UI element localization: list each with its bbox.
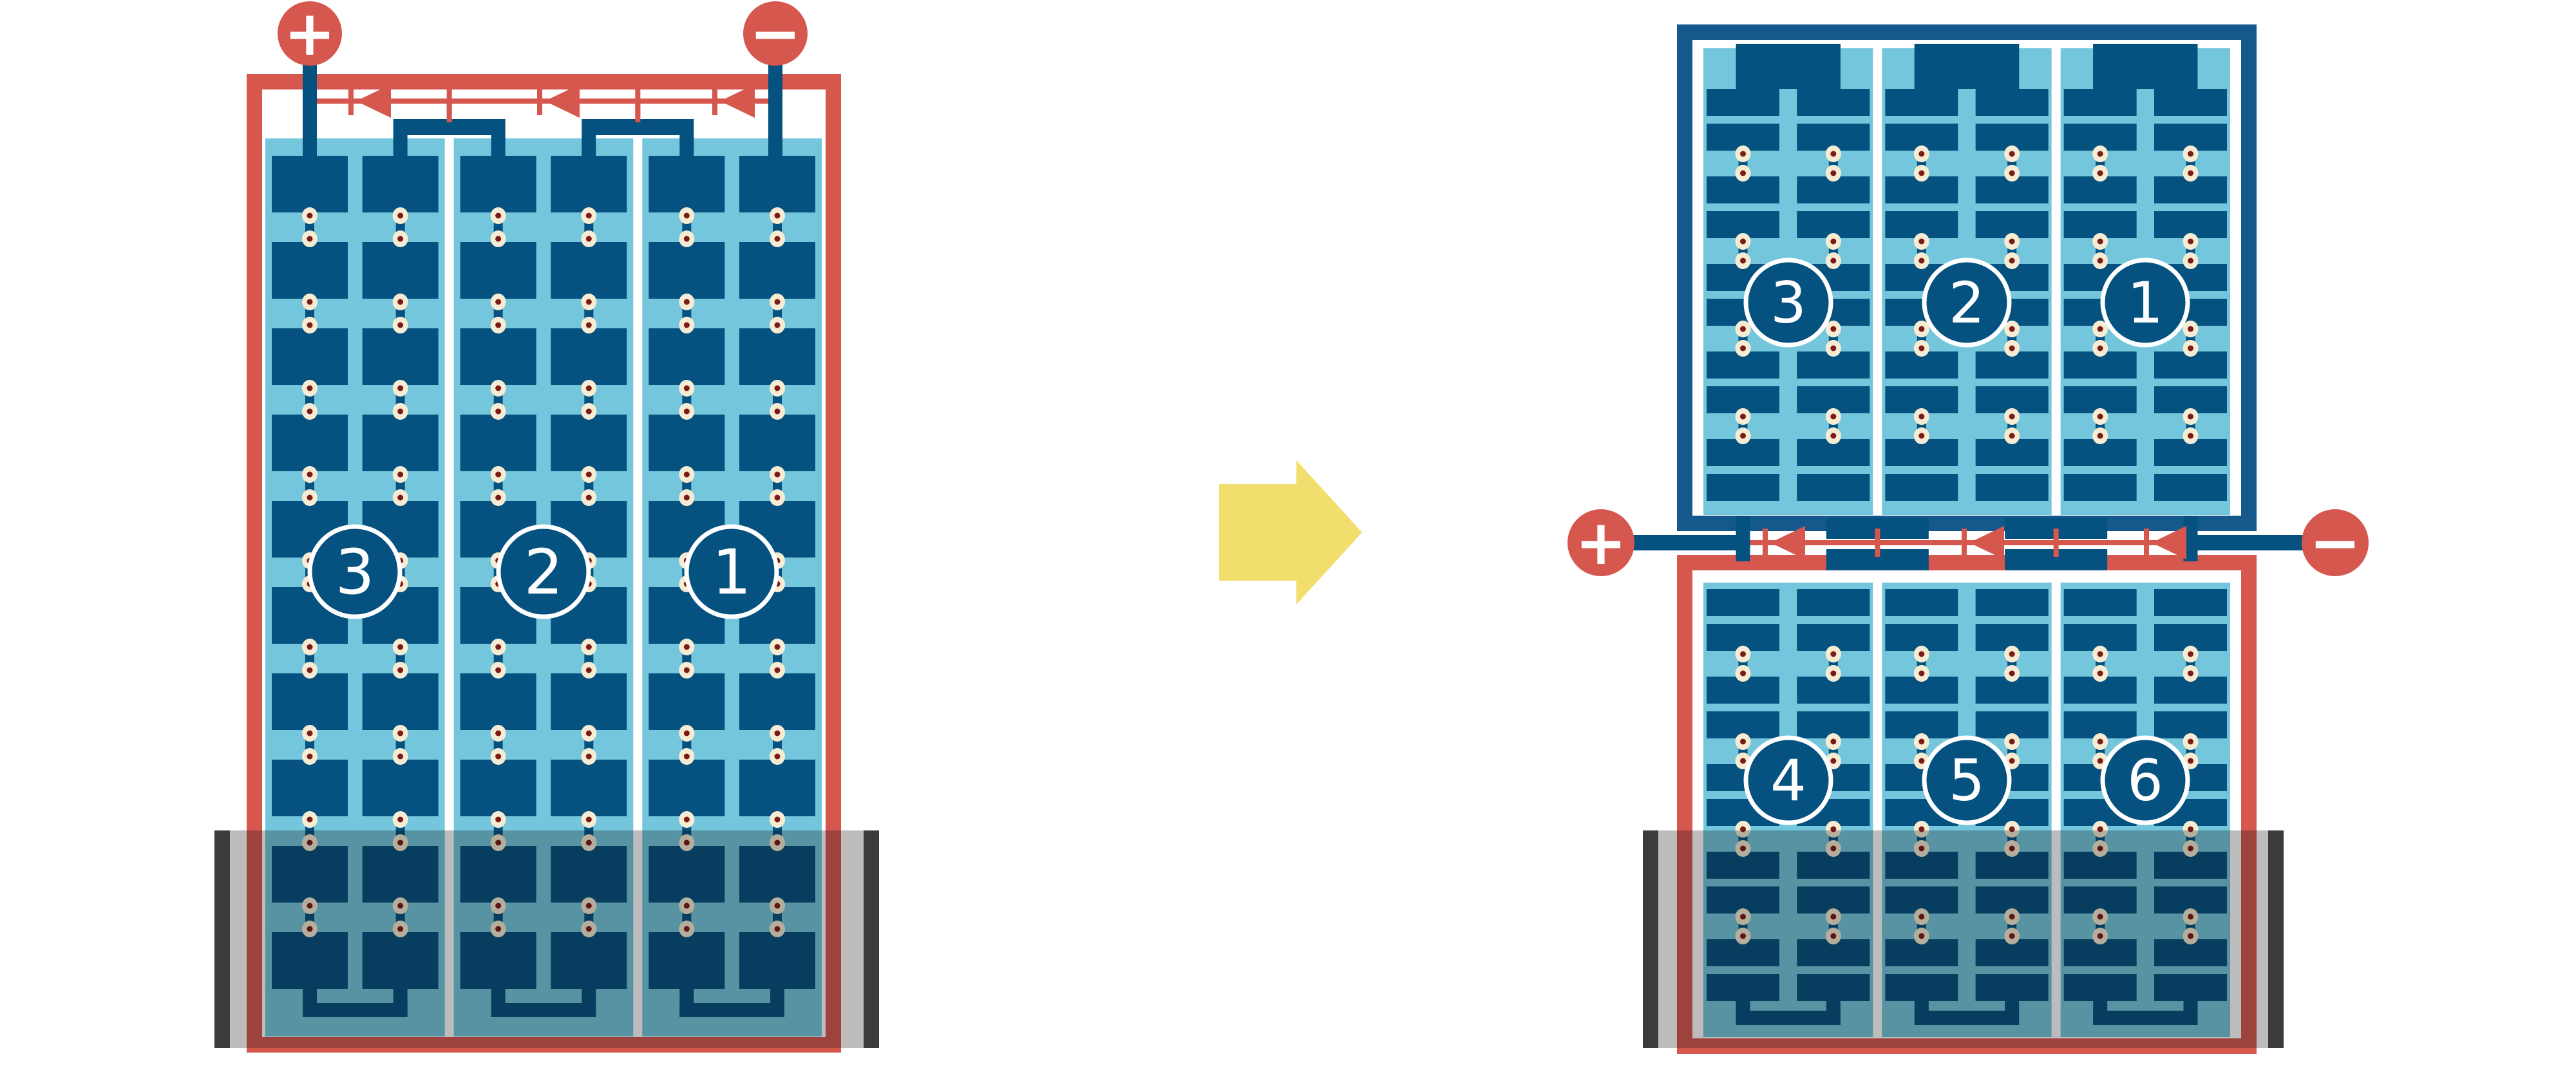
connector-dot-core — [397, 644, 403, 650]
solar-cell — [649, 156, 724, 212]
connector-dot-core — [775, 644, 781, 650]
connector-dot-core — [495, 409, 501, 415]
diagram-stage: + − 3 2 1 + − 3 — [0, 0, 2576, 1068]
bus-bridge-leg — [679, 135, 694, 158]
connector-dot-core — [2098, 651, 2103, 657]
solar-cell — [649, 415, 724, 471]
rail-end-cap — [2268, 830, 2284, 1048]
diagram-canvas: + − 3 2 1 + − 3 — [0, 0, 2576, 1068]
solar-cell — [551, 760, 627, 816]
wire-tick — [2054, 529, 2059, 557]
connector-dot-core — [775, 731, 781, 736]
connector-dot-core — [1740, 326, 1746, 332]
connector-dot-core — [684, 323, 690, 328]
connector-dot-core — [2098, 671, 2103, 677]
solar-cell — [1976, 474, 2049, 501]
connector-dot-core — [495, 495, 501, 501]
connector-dot-core — [1918, 414, 1924, 420]
connector-dot-core — [307, 644, 313, 650]
solar-cell — [2154, 589, 2227, 616]
connector-dot-core — [2098, 433, 2103, 439]
right-bottom-string-badges: 4 5 6 — [1746, 738, 2188, 823]
connector-dot-core — [397, 472, 403, 478]
connector-dot-core — [307, 817, 313, 823]
solar-cell — [272, 760, 348, 816]
connector-dot-core — [1830, 651, 1836, 657]
solar-cell — [460, 673, 536, 730]
connector-dot-core — [307, 386, 313, 391]
right-modules-figure: + − 3 2 1 4 5 6 — [1567, 32, 2369, 1048]
solar-cell — [363, 415, 439, 471]
bus-bridge-leg — [393, 135, 408, 158]
solar-cell — [739, 673, 815, 730]
solar-cell — [649, 242, 724, 299]
solar-cell — [551, 156, 627, 212]
rail-shade — [230, 830, 864, 1048]
connector-dot-core — [2098, 258, 2103, 264]
solar-cell — [1885, 89, 1958, 116]
string-badge-label: 5 — [1949, 747, 1985, 814]
connector-dot-core — [1740, 346, 1746, 351]
connector-dot-core — [775, 754, 781, 760]
connector-dot-core — [775, 323, 781, 328]
u-connector-bar — [1915, 44, 2019, 58]
connector-dot-core — [684, 386, 690, 391]
connector-dot-core — [684, 495, 690, 501]
connector-dot-core — [2188, 326, 2193, 332]
solar-cell — [1976, 89, 2049, 116]
transform-arrow-icon — [1219, 460, 1362, 604]
connector-dot-core — [2009, 671, 2015, 677]
positive-terminal-label: + — [1575, 507, 1627, 579]
wire-drop — [447, 104, 452, 122]
connector-dot-core — [495, 236, 501, 242]
connector-dot-core — [586, 731, 592, 736]
diode-tick — [712, 87, 717, 115]
right-mounting-rail — [1643, 830, 2284, 1048]
connector-dot-core — [586, 668, 592, 673]
connector-dot-core — [397, 236, 403, 242]
connector-dot-core — [2009, 346, 2015, 351]
connector-dot-core — [1918, 758, 1924, 764]
connector-dot-core — [2188, 739, 2193, 745]
solar-cell — [739, 242, 815, 299]
connector-dot-core — [1830, 758, 1836, 764]
connector-dot-core — [1740, 258, 1746, 264]
connector-dot-core — [1740, 433, 1746, 439]
rail-end-cap — [864, 830, 879, 1048]
connector-dot-core — [586, 213, 592, 219]
left-module-figure: + − 3 2 1 — [214, 0, 879, 1048]
connector-dot-core — [775, 495, 781, 501]
connector-dot-core — [1918, 671, 1924, 677]
connector-dot-core — [2009, 239, 2015, 245]
solar-cell — [551, 673, 627, 730]
solar-cell — [1885, 589, 1958, 616]
solar-cell — [551, 242, 627, 299]
connector-dot-core — [495, 754, 501, 760]
column-gap — [2052, 48, 2061, 515]
connector-dot-core — [684, 299, 690, 305]
connector-dot-core — [1740, 171, 1746, 176]
connector-dot-core — [2009, 151, 2015, 157]
connector-dot-core — [307, 213, 313, 219]
connector-dot-core — [1918, 346, 1924, 351]
connector-dot-core — [397, 668, 403, 673]
connector-dot-core — [586, 472, 592, 478]
positive-terminal-label: + — [284, 0, 336, 70]
solar-cell — [649, 760, 724, 816]
negative-terminal-label: − — [2309, 507, 2361, 579]
connector-dot-core — [1830, 326, 1836, 332]
solar-cell — [1707, 474, 1779, 501]
connector-dot-core — [2009, 326, 2015, 332]
string-badge-label: 6 — [2127, 747, 2163, 814]
solar-cell — [739, 415, 815, 471]
connector-dot-core — [2098, 346, 2103, 351]
terminal-bus-bar — [2198, 535, 2305, 550]
connector-dot-core — [2098, 239, 2103, 245]
connector-dot-core — [1918, 171, 1924, 176]
string-badge-label: 2 — [524, 536, 563, 608]
solar-cell — [2064, 89, 2137, 116]
solar-cell — [2064, 474, 2137, 501]
bus-bridge-leg — [491, 135, 506, 158]
connector-dot-core — [1918, 739, 1924, 745]
connector-dot-core — [397, 754, 403, 760]
connector-dot-core — [307, 731, 313, 736]
connector-dot-core — [1918, 326, 1924, 332]
left-mounting-rail — [214, 830, 879, 1048]
string-badge-label: 1 — [2127, 270, 2163, 336]
connector-dot-core — [586, 817, 592, 823]
column-gap — [1873, 48, 1882, 515]
connector-dot-core — [495, 668, 501, 673]
connector-dot-core — [1740, 651, 1746, 657]
connector-dot-core — [397, 409, 403, 415]
solar-cell — [739, 760, 815, 816]
solar-cell — [1885, 474, 1958, 501]
solar-cell — [272, 242, 348, 299]
u-connector-bar — [2093, 44, 2197, 58]
solar-cell — [363, 242, 439, 299]
solar-cell — [272, 673, 348, 730]
connector-dot-core — [397, 386, 403, 391]
connector-dot-core — [586, 644, 592, 650]
solar-cell — [460, 156, 536, 212]
connector-dot-core — [775, 817, 781, 823]
solar-cell — [1976, 589, 2049, 616]
solar-cell — [551, 328, 627, 385]
solar-cell — [2064, 589, 2137, 616]
connector-dot-core — [307, 754, 313, 760]
solar-cell — [272, 415, 348, 471]
connector-dot-core — [2098, 171, 2103, 176]
connector-dot-core — [1830, 671, 1836, 677]
solar-cell — [1797, 89, 1870, 116]
connector-dot-core — [2188, 758, 2193, 764]
connector-dot-core — [495, 299, 501, 305]
connector-dot-core — [307, 668, 313, 673]
solar-cell — [739, 328, 815, 385]
connector-dot-core — [684, 213, 690, 219]
connector-dot-core — [2188, 651, 2193, 657]
solar-cell — [460, 415, 536, 471]
connector-dot-core — [1830, 433, 1836, 439]
connector-dot-core — [684, 817, 690, 823]
connector-dot-core — [2009, 651, 2015, 657]
connector-dot-core — [684, 668, 690, 673]
connector-dot-core — [397, 731, 403, 736]
connector-dot-core — [586, 409, 592, 415]
connector-dot-core — [397, 495, 403, 501]
solar-cell — [2154, 474, 2227, 501]
connector-dot-core — [1830, 346, 1836, 351]
solar-cell — [363, 156, 439, 212]
diode-tick — [2144, 529, 2149, 557]
connector-dot-core — [586, 754, 592, 760]
connector-dot-core — [586, 323, 592, 328]
connector-dot-core — [2009, 258, 2015, 264]
connector-dot-core — [1830, 414, 1836, 420]
solar-cell — [363, 328, 439, 385]
connector-dot-core — [495, 817, 501, 823]
rail-shade — [1658, 830, 2268, 1048]
connector-dot-core — [1740, 758, 1746, 764]
string-badge-label: 2 — [1949, 270, 1985, 336]
connector-dot-core — [684, 409, 690, 415]
connector-dot-core — [1830, 171, 1836, 176]
connector-dot-core — [775, 668, 781, 673]
terminal-post — [768, 61, 782, 187]
connector-dot-core — [397, 213, 403, 219]
connector-dot-core — [1740, 671, 1746, 677]
connector-dot-core — [2009, 758, 2015, 764]
connector-dot-core — [2188, 346, 2193, 351]
connector-dot-core — [495, 644, 501, 650]
connector-dot-core — [775, 409, 781, 415]
terminal-bus-bar — [1627, 535, 1736, 550]
string-badge-label: 3 — [335, 536, 374, 608]
connector-dot-core — [2098, 151, 2103, 157]
connector-dot-core — [307, 495, 313, 501]
solar-cell — [649, 328, 724, 385]
connector-dot-core — [2188, 258, 2193, 264]
solar-cell — [363, 673, 439, 730]
connector-dot-core — [1740, 414, 1746, 420]
connector-dot-core — [586, 386, 592, 391]
connector-dot-core — [684, 754, 690, 760]
connector-dot-core — [1830, 151, 1836, 157]
connector-dot-core — [775, 299, 781, 305]
diode-tick — [1763, 529, 1768, 557]
connector-dot-core — [2188, 239, 2193, 245]
connector-dot-core — [307, 299, 313, 305]
connector-dot-core — [775, 213, 781, 219]
solar-cell — [1707, 89, 1779, 116]
diode-tick — [1962, 529, 1967, 557]
connector-dot-core — [397, 299, 403, 305]
connector-dot-core — [2188, 151, 2193, 157]
diode-tick — [348, 87, 354, 115]
string-badge-label: 4 — [1770, 747, 1806, 814]
connector-dot-core — [1918, 651, 1924, 657]
connector-dot-core — [2188, 433, 2193, 439]
connector-dot-core — [307, 323, 313, 328]
junction-connector — [1736, 516, 1750, 561]
connector-dot-core — [586, 495, 592, 501]
connector-dot-core — [307, 409, 313, 415]
connector-dot-core — [2098, 414, 2103, 420]
string-badge-label: 1 — [712, 536, 751, 608]
connector-dot-core — [775, 472, 781, 478]
connector-dot-core — [495, 323, 501, 328]
wire-tick — [1875, 529, 1880, 557]
string-badge-label: 3 — [1770, 270, 1806, 336]
connector-dot-core — [1918, 433, 1924, 439]
connector-dot-core — [397, 817, 403, 823]
left-string-badges: 3 2 1 — [310, 527, 777, 617]
connector-dot-core — [495, 213, 501, 219]
connector-dot-core — [2098, 326, 2103, 332]
solar-cell — [272, 328, 348, 385]
right-top-string-badges: 3 2 1 — [1746, 260, 2188, 345]
solar-cell — [2154, 89, 2227, 116]
connector-dot-core — [586, 236, 592, 242]
connector-dot-core — [495, 731, 501, 736]
solar-cell — [460, 242, 536, 299]
solar-cell — [460, 760, 536, 816]
connector-dot-core — [1830, 239, 1836, 245]
solar-cell — [1797, 589, 1870, 616]
rail-end-cap — [1643, 830, 1658, 1048]
connector-dot-core — [2098, 739, 2103, 745]
connector-dot-core — [684, 731, 690, 736]
connector-dot-core — [2009, 171, 2015, 176]
connector-dot-core — [2009, 433, 2015, 439]
connector-dot-core — [1740, 239, 1746, 245]
connector-dot-core — [1740, 151, 1746, 157]
connector-dot-core — [2009, 414, 2015, 420]
connector-dot-core — [684, 236, 690, 242]
connector-dot-core — [1918, 239, 1924, 245]
connector-dot-core — [775, 386, 781, 391]
bus-bridge-leg — [582, 135, 596, 158]
connector-dot-core — [1918, 151, 1924, 157]
diode-tick — [537, 87, 542, 115]
connector-dot-core — [586, 299, 592, 305]
connector-dot-core — [684, 644, 690, 650]
connector-dot-core — [1830, 258, 1836, 264]
solar-cell — [649, 673, 724, 730]
terminal-post — [303, 61, 317, 187]
connector-dot-core — [1830, 739, 1836, 745]
connector-dot-core — [2188, 671, 2193, 677]
connector-dot-core — [397, 323, 403, 328]
connector-dot-core — [307, 236, 313, 242]
connector-dot-core — [684, 472, 690, 478]
solar-cell — [460, 328, 536, 385]
connector-dot-core — [495, 386, 501, 391]
connector-dot-core — [2188, 171, 2193, 176]
solar-cell — [1707, 589, 1779, 616]
connector-dot-core — [1740, 739, 1746, 745]
solar-cell — [551, 415, 627, 471]
wire-drop — [635, 104, 640, 122]
u-connector-bar — [1736, 44, 1841, 58]
connector-dot-core — [2188, 414, 2193, 420]
negative-terminal-label: − — [750, 0, 801, 70]
connector-dot-core — [495, 472, 501, 478]
connector-dot-core — [775, 236, 781, 242]
connector-dot-core — [307, 472, 313, 478]
solar-cell — [1797, 474, 1870, 501]
rail-end-cap — [214, 830, 230, 1048]
solar-cell — [363, 760, 439, 816]
connector-dot-core — [2009, 739, 2015, 745]
connector-dot-core — [1918, 258, 1924, 264]
connector-dot-core — [2098, 758, 2103, 764]
